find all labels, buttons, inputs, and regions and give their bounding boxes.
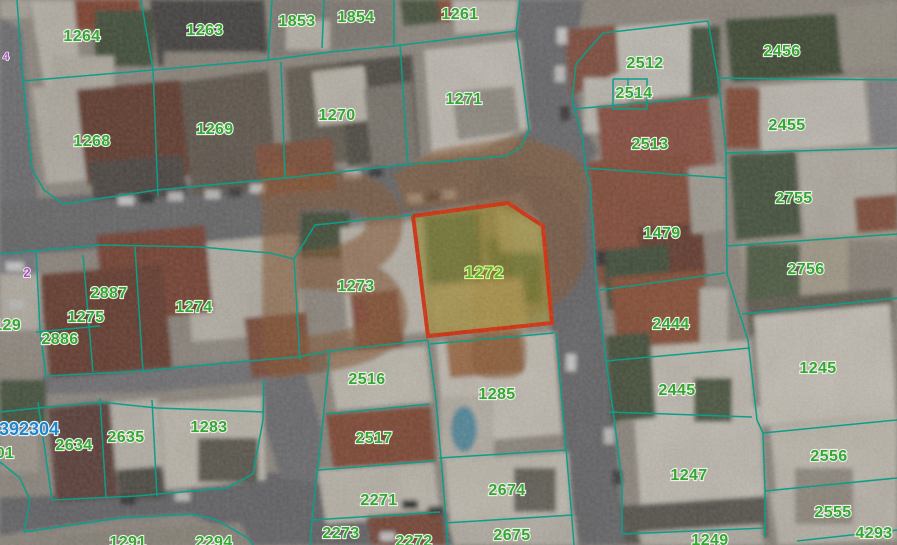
svg-text:1853: 1853: [278, 13, 315, 30]
svg-text:2886: 2886: [41, 331, 78, 348]
svg-text:2272: 2272: [395, 533, 432, 545]
svg-text:4293: 4293: [855, 525, 892, 542]
svg-text:1249: 1249: [691, 532, 728, 545]
svg-text:2756: 2756: [787, 261, 824, 278]
svg-text:2556: 2556: [810, 448, 847, 465]
svg-text:2455: 2455: [768, 117, 805, 134]
svg-text:1274: 1274: [175, 299, 212, 316]
svg-text:2513: 2513: [631, 136, 668, 153]
svg-text:2634: 2634: [55, 437, 92, 454]
svg-text:392304: 392304: [0, 419, 59, 439]
svg-text:1269: 1269: [196, 121, 233, 138]
svg-text:2675: 2675: [493, 527, 530, 544]
svg-text:2755: 2755: [775, 190, 812, 207]
svg-text:2555: 2555: [814, 504, 851, 521]
svg-text:2517: 2517: [355, 430, 392, 447]
svg-text:1268: 1268: [73, 133, 110, 150]
svg-text:1261: 1261: [441, 6, 478, 23]
svg-text:2635: 2635: [107, 429, 144, 446]
svg-text:1285: 1285: [478, 386, 515, 403]
svg-text:1272: 1272: [464, 263, 503, 282]
svg-text:2271: 2271: [360, 492, 397, 509]
svg-text:1247: 1247: [670, 467, 707, 484]
svg-text:1271: 1271: [445, 91, 482, 108]
svg-text:2887: 2887: [90, 285, 127, 302]
svg-text:2444: 2444: [652, 316, 689, 333]
svg-text:2514: 2514: [615, 85, 652, 102]
svg-text:1275: 1275: [67, 309, 104, 326]
svg-text:2273: 2273: [322, 525, 359, 542]
svg-text:2445: 2445: [658, 382, 695, 399]
svg-text:1854: 1854: [337, 9, 374, 26]
svg-text:1129: 1129: [0, 317, 21, 334]
svg-text:2: 2: [23, 265, 30, 280]
svg-text:4: 4: [3, 51, 10, 63]
svg-text:1270: 1270: [318, 107, 355, 124]
svg-text:01: 01: [0, 445, 14, 462]
svg-text:1479: 1479: [643, 225, 680, 242]
svg-text:1245: 1245: [799, 360, 836, 377]
svg-text:2294: 2294: [195, 534, 232, 545]
svg-text:1264: 1264: [63, 28, 100, 45]
svg-text:2516: 2516: [348, 371, 385, 388]
svg-text:1263: 1263: [186, 22, 223, 39]
svg-text:1283: 1283: [190, 419, 227, 436]
svg-text:2456: 2456: [763, 43, 800, 60]
svg-text:2512: 2512: [626, 55, 663, 72]
svg-text:2674: 2674: [488, 482, 525, 499]
svg-text:1291: 1291: [109, 534, 146, 545]
svg-text:1273: 1273: [337, 278, 374, 295]
